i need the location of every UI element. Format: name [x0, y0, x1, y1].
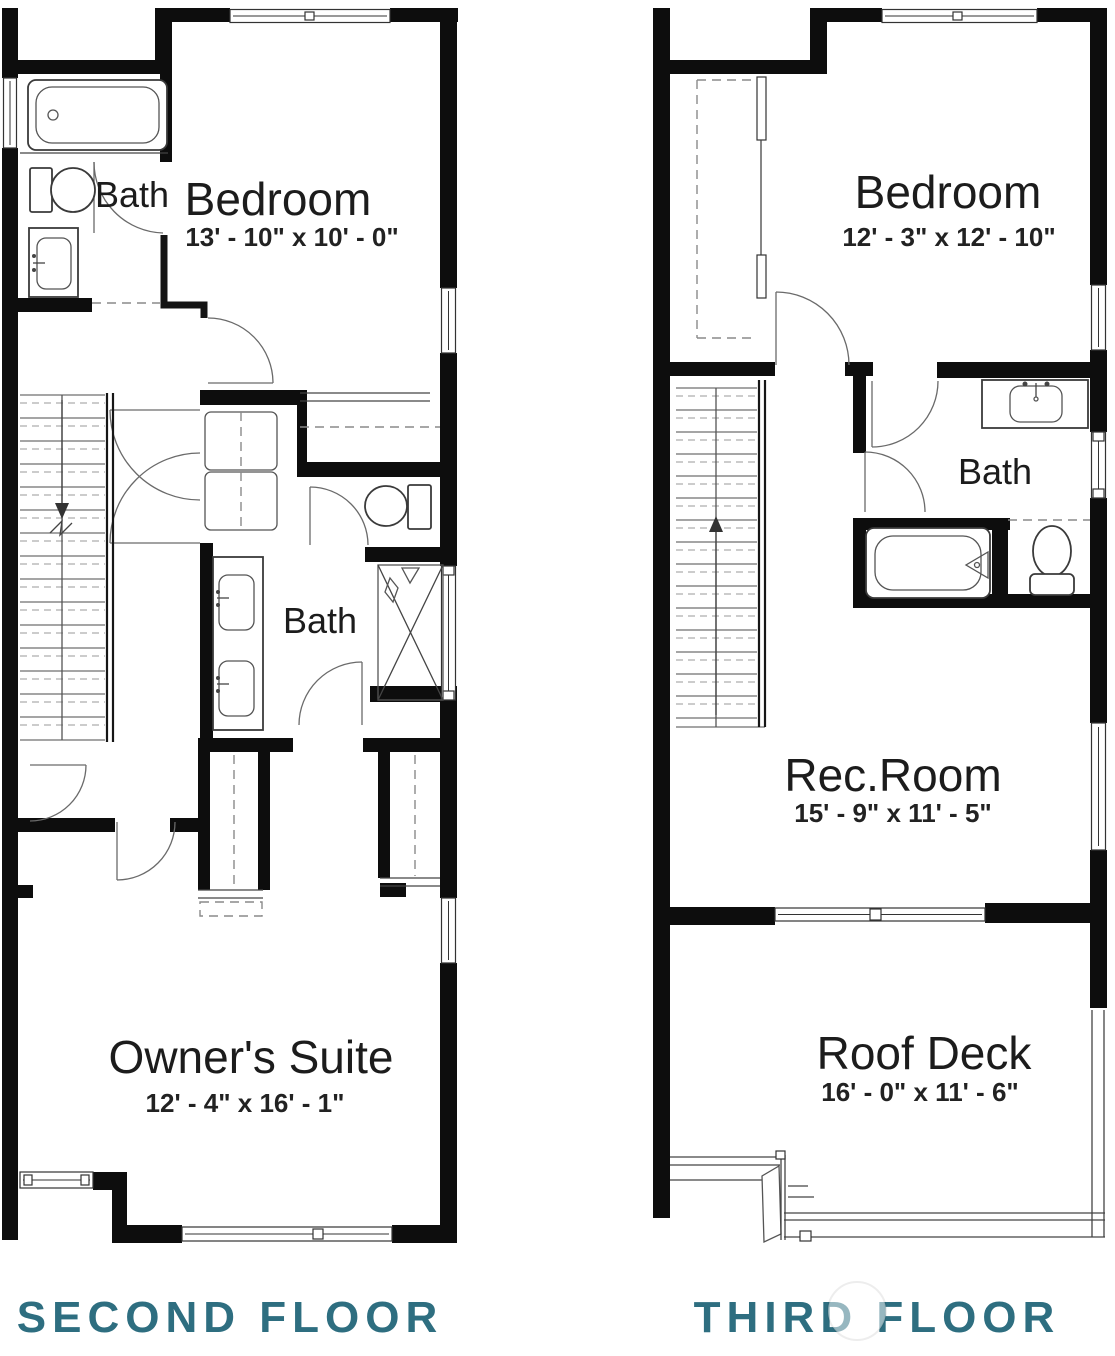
shower [378, 565, 443, 700]
door [865, 452, 925, 512]
door [299, 662, 362, 725]
bathtub [20, 80, 168, 153]
bedroom-closet-front [300, 393, 430, 401]
sink-vanity [29, 228, 78, 297]
toilet [30, 168, 95, 212]
double-closet-doors [110, 410, 200, 543]
stair-direction-arrow [50, 400, 72, 535]
door [872, 381, 938, 447]
second-floor-title: SECOND FLOOR [17, 1293, 443, 1342]
stairwell-open-below [697, 77, 766, 338]
room-dims-roof-deck: 16' - 0" x 11' - 6" [821, 1077, 1018, 1107]
room-dims-rec-room: 15' - 9" x 11' - 5" [794, 798, 991, 828]
bathtub [866, 528, 990, 598]
floor-plan-page: Bath Bedroom 13' - 10" x 10' - 0" Bath O… [0, 0, 1115, 1356]
room-label-owners-suite: Owner's Suite [109, 1031, 394, 1083]
room-label-bath-upper: Bath [95, 174, 169, 215]
window [20, 1172, 93, 1188]
room-dims-bedroom: 13' - 10" x 10' - 0" [185, 222, 398, 252]
window [4, 78, 17, 148]
watermark-circle [828, 1282, 886, 1340]
window [1092, 723, 1106, 850]
toilet [1030, 526, 1074, 595]
staircase-down [20, 393, 113, 742]
door [310, 487, 368, 545]
hall-closet [205, 412, 277, 530]
window [182, 1227, 392, 1241]
window [442, 288, 456, 353]
door [776, 292, 849, 365]
floor-plan-drawing: Bath Bedroom 13' - 10" x 10' - 0" Bath O… [0, 0, 1115, 1356]
window [1092, 432, 1106, 498]
door [117, 822, 175, 880]
staircase-up [676, 380, 765, 727]
room-label-bath-main: Bath [283, 600, 357, 641]
room-dims-bedroom: 12' - 3" x 12' - 10" [842, 222, 1055, 252]
double-sink-vanity [213, 557, 263, 730]
sink-vanity [982, 380, 1088, 428]
second-floor-plan: Bath Bedroom 13' - 10" x 10' - 0" Bath O… [2, 8, 458, 1243]
window [230, 10, 390, 23]
toilet [365, 485, 431, 529]
room-dims-owners-suite: 12' - 4" x 16' - 1" [146, 1088, 345, 1118]
window [1092, 285, 1106, 350]
door [30, 765, 86, 821]
third-floor-plan: Bedroom 12' - 3" x 12' - 10" Bath Rec.Ro… [653, 8, 1107, 1242]
sliding-glass-door [775, 908, 985, 921]
door [208, 318, 273, 383]
stair-direction-arrow [709, 516, 723, 715]
room-label-bedroom: Bedroom [855, 166, 1042, 218]
room-label-bedroom: Bedroom [185, 173, 372, 225]
room-label-bath: Bath [958, 451, 1032, 492]
room-label-rec-room: Rec.Room [784, 749, 1001, 801]
window [882, 10, 1037, 23]
room-label-roof-deck: Roof Deck [817, 1027, 1033, 1079]
window [442, 898, 456, 963]
